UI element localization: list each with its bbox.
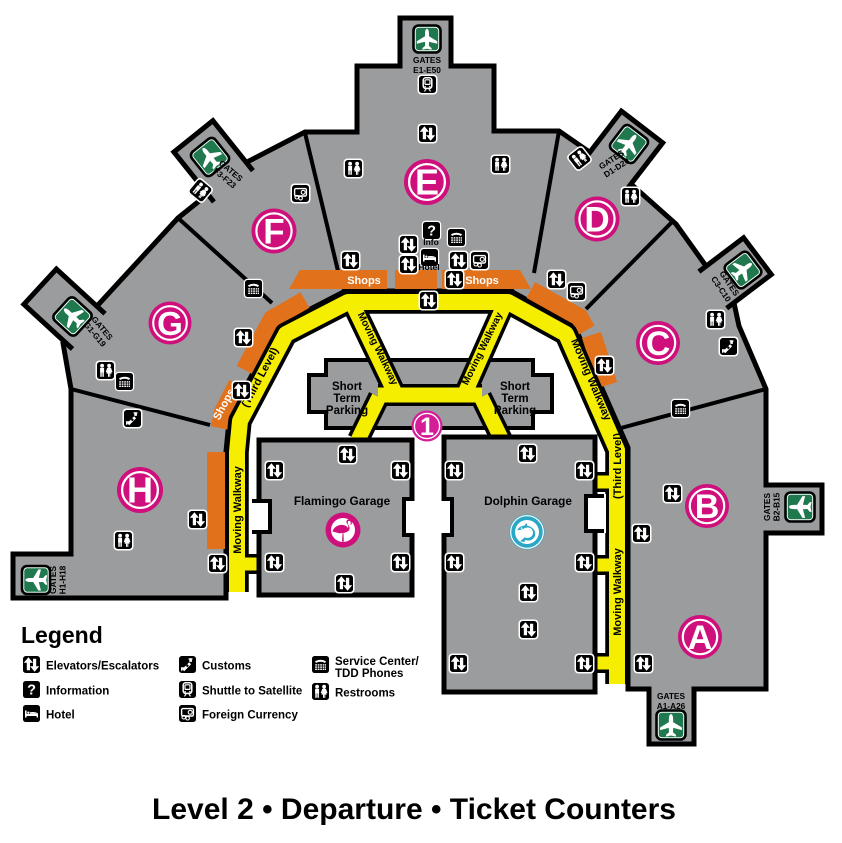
svg-text:Term: Term bbox=[333, 393, 360, 405]
svg-text:Foreign Currency: Foreign Currency bbox=[202, 710, 298, 722]
svg-text:E1-E50: E1-E50 bbox=[413, 65, 441, 75]
svg-text:Flamingo Garage: Flamingo Garage bbox=[294, 494, 391, 508]
svg-text:F: F bbox=[263, 212, 284, 251]
svg-text:Elevators/Escalators: Elevators/Escalators bbox=[46, 661, 159, 673]
svg-text:H: H bbox=[127, 470, 153, 511]
svg-text:Shuttle to Satellite: Shuttle to Satellite bbox=[202, 686, 302, 698]
svg-text:Legend: Legend bbox=[21, 622, 103, 648]
svg-text:G: G bbox=[157, 305, 183, 342]
svg-text:B: B bbox=[695, 488, 720, 526]
svg-text:GATESB2-B15: GATESB2-B15 bbox=[762, 492, 782, 521]
svg-text:Customs: Customs bbox=[202, 661, 251, 673]
svg-text:Short: Short bbox=[332, 381, 362, 393]
svg-text:Info: Info bbox=[423, 237, 439, 247]
svg-text:1: 1 bbox=[420, 413, 434, 441]
svg-text:Moving Walkway: Moving Walkway bbox=[612, 547, 624, 635]
svg-text:Service Center/: Service Center/ bbox=[335, 656, 420, 668]
svg-text:Hotel: Hotel bbox=[418, 262, 439, 272]
svg-text:Shops: Shops bbox=[347, 275, 381, 287]
svg-text:Parking: Parking bbox=[326, 405, 368, 417]
svg-text:A: A bbox=[688, 619, 713, 657]
svg-text:(Third Level): (Third Level) bbox=[612, 433, 624, 499]
svg-text:TDD Phones: TDD Phones bbox=[335, 668, 403, 680]
svg-text:GATES: GATES bbox=[413, 55, 441, 65]
svg-text:GATES: GATES bbox=[657, 691, 685, 701]
svg-text:Term: Term bbox=[501, 393, 528, 405]
svg-text:Level 2 • Departure • Ticket C: Level 2 • Departure • Ticket Counters bbox=[152, 793, 676, 826]
svg-text:GATESH1-H18: GATESH1-H18 bbox=[48, 565, 68, 594]
svg-text:Information: Information bbox=[46, 686, 109, 698]
svg-text:A1-A26: A1-A26 bbox=[657, 701, 686, 711]
svg-text:C: C bbox=[646, 325, 671, 363]
svg-text:Moving Walkway: Moving Walkway bbox=[232, 465, 244, 553]
svg-text:D: D bbox=[584, 200, 609, 239]
svg-text:Dolphin Garage: Dolphin Garage bbox=[484, 494, 572, 508]
svg-text:Restrooms: Restrooms bbox=[335, 688, 395, 700]
svg-text:Short: Short bbox=[500, 381, 530, 393]
svg-text:Parking: Parking bbox=[494, 405, 536, 417]
svg-text:Shops: Shops bbox=[465, 275, 499, 287]
svg-text:E: E bbox=[415, 162, 439, 203]
svg-text:Hotel: Hotel bbox=[46, 710, 75, 722]
